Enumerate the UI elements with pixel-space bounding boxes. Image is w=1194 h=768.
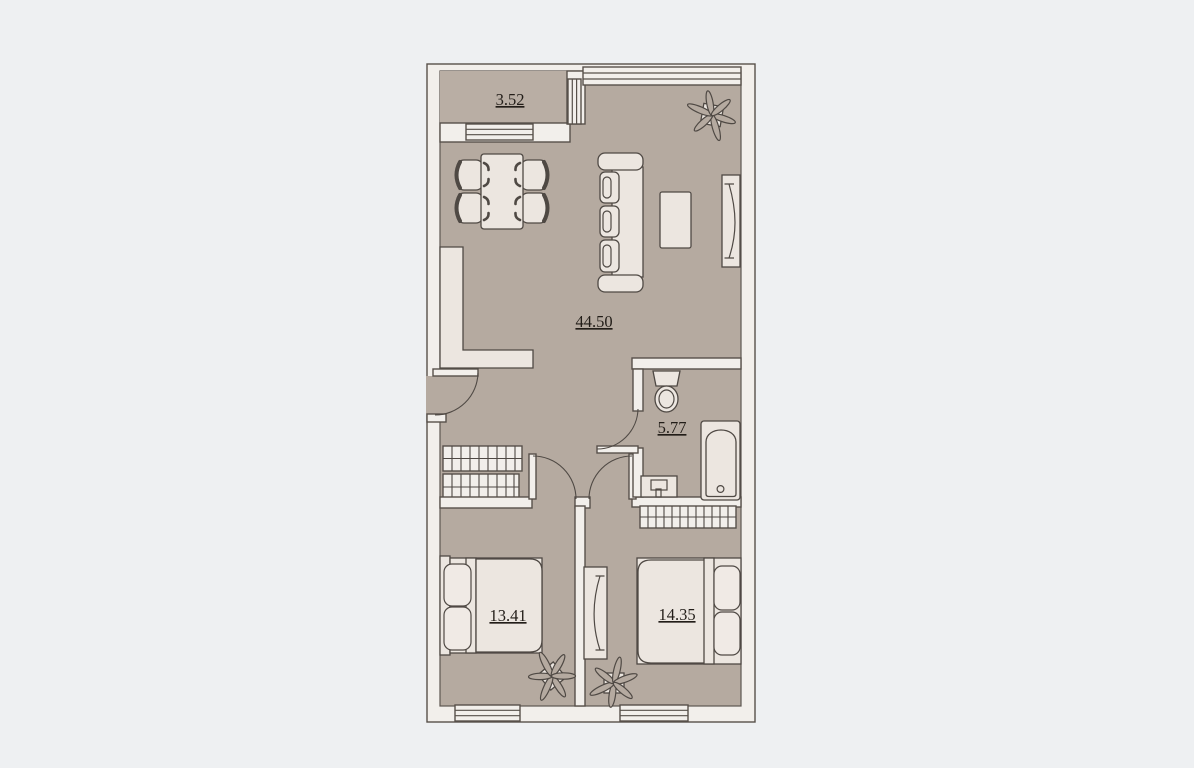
floor-plan-page: 3.52 [0, 0, 1194, 768]
door-leaf [597, 446, 638, 453]
pillow [714, 566, 740, 610]
hall-cabinet [443, 474, 519, 500]
balcony-window-icon [466, 124, 533, 140]
living-window-icon [583, 67, 741, 85]
hall-cabinet [443, 446, 522, 471]
dining-chair [521, 193, 548, 223]
washbasin-icon [641, 476, 677, 497]
room-balcony: 3.52 [440, 71, 585, 142]
pillow [444, 607, 471, 650]
bedroom-2-window-icon [620, 705, 688, 721]
bedroom-1-area-label: 13.41 [489, 606, 526, 625]
balcony-door-window-icon [568, 79, 581, 124]
wall-segment [440, 497, 532, 508]
toilet-icon [653, 371, 680, 412]
sofa-armrest [598, 275, 643, 292]
wardrobe-panel [584, 567, 607, 659]
dining-chair [457, 160, 484, 190]
pillow [714, 612, 740, 655]
bed-fold-band [704, 558, 714, 664]
sofa-armrest [598, 153, 643, 170]
bathroom-area-label: 5.77 [658, 418, 687, 437]
bedroom-2-area-label: 14.35 [658, 605, 695, 624]
living-area-label: 44.50 [575, 312, 612, 331]
door-leaf [529, 454, 536, 499]
wall-segment [633, 369, 643, 411]
pillow [444, 564, 471, 606]
dining-chair [457, 193, 484, 223]
sofa [598, 153, 643, 292]
entrance-doorway [426, 376, 441, 414]
radiator-icon [640, 506, 736, 528]
dining-chair [521, 160, 548, 190]
coffee-table [660, 192, 691, 248]
wall-segment [632, 358, 741, 369]
floor-plan-drawing: 3.52 [0, 0, 1194, 768]
door-leaf [433, 369, 478, 376]
bedroom-1-window-icon [455, 705, 520, 721]
tv-panel [722, 175, 740, 267]
balcony-area-label: 3.52 [496, 90, 525, 109]
bathtub-icon [701, 421, 740, 500]
